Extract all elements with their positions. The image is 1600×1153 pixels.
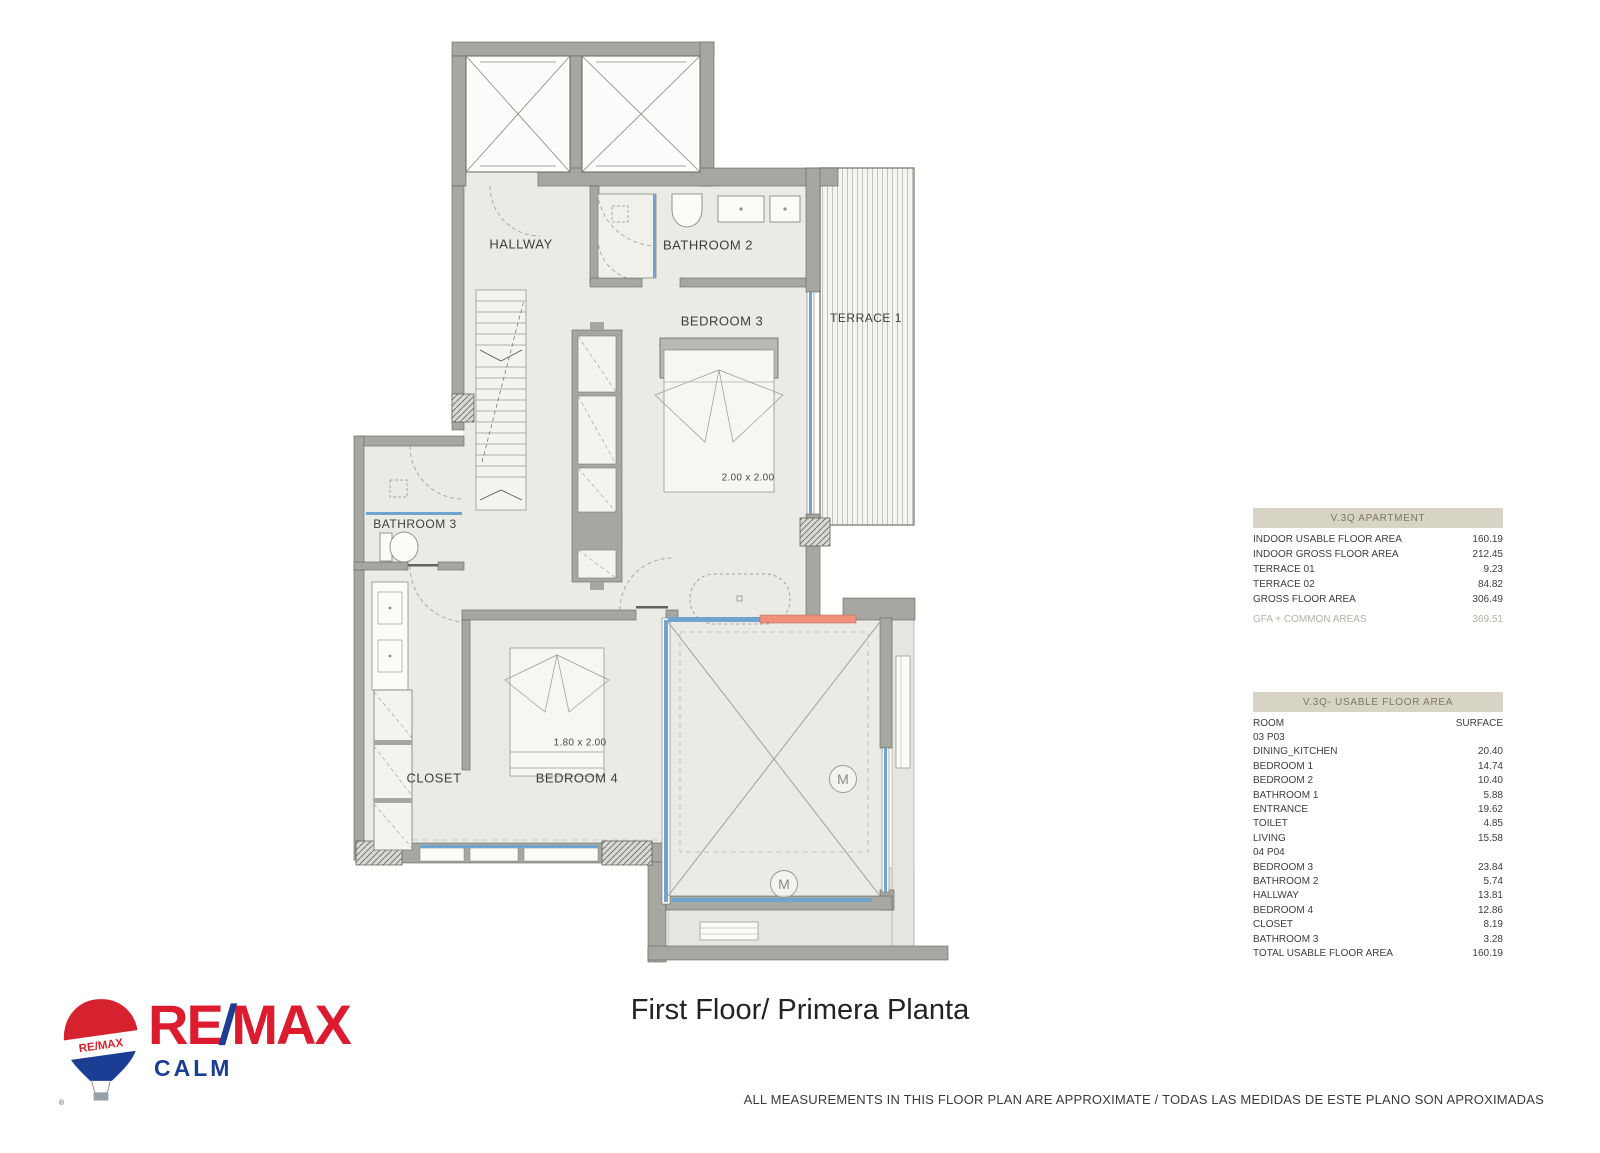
- gfa-common-value: 369.51: [1472, 612, 1503, 627]
- table-row: 03 P03: [1253, 731, 1503, 745]
- terrace-1-deck: [820, 168, 914, 525]
- bed-bedroom4: [505, 648, 609, 776]
- usable-table-title: V.3Q- USABLE FLOOR AREA: [1253, 692, 1503, 712]
- apartment-table-title: V.3Q APARTMENT: [1253, 508, 1503, 528]
- vanity: [372, 582, 408, 690]
- wordmark-max: MAX: [231, 997, 349, 1053]
- room-label-hallway: HALLWAY: [489, 237, 552, 252]
- registered-symbol: ®: [59, 1098, 65, 1107]
- table-row: BATHROOM 33.28: [1253, 933, 1503, 947]
- usable-table-column-headers: ROOM SURFACE: [1253, 716, 1503, 731]
- table-row: TOILET4.85: [1253, 817, 1503, 831]
- room-label-closet: CLOSET: [406, 771, 461, 786]
- table-row: HALLWAY13.81: [1253, 889, 1503, 903]
- stairs: [476, 290, 526, 510]
- remax-wordmark: RE / MAX: [148, 997, 350, 1053]
- table-row: TERRACE 0284.82: [1253, 577, 1503, 592]
- elevator-shafts: [466, 56, 700, 172]
- table-row: BATHROOM 25.74: [1253, 875, 1503, 889]
- mirror-marker: M: [829, 765, 857, 793]
- room-label-bedroom4: BEDROOM 4: [536, 771, 619, 786]
- door-leaf: [636, 606, 668, 609]
- remax-balloon-icon: RE/MAX ®: [55, 995, 147, 1107]
- wordmark-re: RE: [148, 997, 222, 1053]
- floor-plan-page: HALLWAY BATHROOM 2 BEDROOM 3 TERRACE 1 B…: [0, 0, 1600, 1153]
- wardrobe: [572, 322, 622, 590]
- table-row: CLOSET8.19: [1253, 918, 1503, 932]
- room-label-bathroom2: BATHROOM 2: [663, 238, 753, 253]
- mirror-marker: M: [770, 870, 798, 898]
- bed-bedroom3: [655, 338, 783, 492]
- table-row: BEDROOM 323.84: [1253, 861, 1503, 875]
- table-row: BATHROOM 15.88: [1253, 789, 1503, 803]
- table-row: BEDROOM 412.86: [1253, 904, 1503, 918]
- remax-logo: RE/MAX ® RE / MAX CALM: [55, 995, 355, 1105]
- table-row: INDOOR GROSS FLOOR AREA212.45: [1253, 547, 1503, 562]
- disclaimer-text: ALL MEASUREMENTS IN THIS FLOOR PLAN ARE …: [744, 1092, 1544, 1107]
- bed4-dimension-label: 1.80 x 2.00: [554, 738, 607, 749]
- table-row: 04 P04: [1253, 846, 1503, 860]
- column-header-room: ROOM: [1253, 716, 1284, 731]
- column-header-surface: SURFACE: [1456, 716, 1503, 731]
- table-row: BEDROOM 114.74: [1253, 760, 1503, 774]
- table-row-gfa-common: GFA + COMMON AREAS 369.51: [1253, 612, 1503, 627]
- table-row: INDOOR USABLE FLOOR AREA160.19: [1253, 532, 1503, 547]
- page-title: First Floor/ Primera Planta: [500, 994, 1100, 1027]
- bed3-dimension-label: 2.00 x 2.00: [722, 473, 775, 484]
- table-row: LIVING15.58: [1253, 832, 1503, 846]
- table-row: GROSS FLOOR AREA306.49: [1253, 592, 1503, 607]
- table-row: DINING_KITCHEN20.40: [1253, 745, 1503, 759]
- table-row: TOTAL USABLE FLOOR AREA160.19: [1253, 947, 1503, 961]
- room-label-bedroom3: BEDROOM 3: [681, 314, 764, 329]
- usable-area-table: V.3Q- USABLE FLOOR AREA ROOM SURFACE 03 …: [1253, 692, 1503, 962]
- apartment-table-rows: INDOOR USABLE FLOOR AREA160.19INDOOR GRO…: [1253, 532, 1503, 607]
- office-name: CALM: [154, 1055, 232, 1082]
- table-row: ENTRANCE19.62: [1253, 803, 1503, 817]
- apartment-summary-table: V.3Q APARTMENT INDOOR USABLE FLOOR AREA1…: [1253, 508, 1503, 628]
- table-row: TERRACE 019.23: [1253, 562, 1503, 577]
- room-label-terrace1: TERRACE 1: [830, 311, 902, 325]
- usable-table-rows: 03 P03DINING_KITCHEN20.40BEDROOM 114.74B…: [1253, 731, 1503, 962]
- table-row: BEDROOM 210.40: [1253, 774, 1503, 788]
- room-label-bathroom3: BATHROOM 3: [373, 517, 456, 531]
- gfa-common-label: GFA + COMMON AREAS: [1253, 612, 1367, 627]
